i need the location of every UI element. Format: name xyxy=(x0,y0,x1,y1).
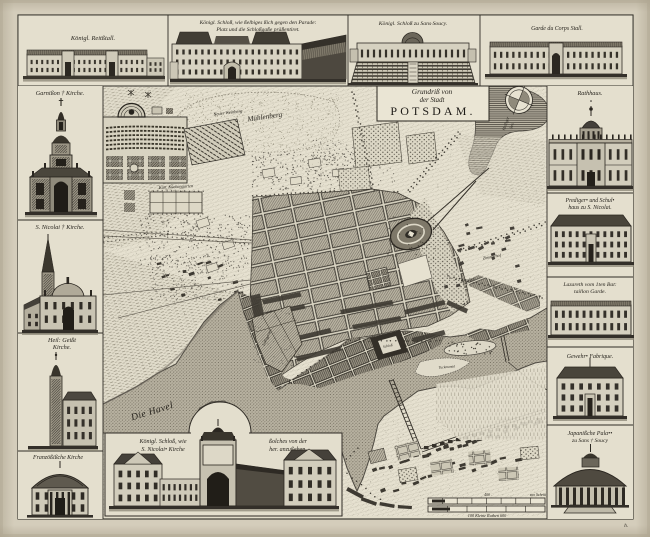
svg-text:Garde du Corps Stall.: Garde du Corps Stall. xyxy=(531,26,583,32)
svg-text:Königl. Reitßtall.: Königl. Reitßtall. xyxy=(70,35,116,42)
svg-text:Kirche.: Kirche. xyxy=(52,344,71,351)
svg-text:Königl. Schloß zu Sans·Soucy.: Königl. Schloß zu Sans·Soucy. xyxy=(378,20,448,27)
svg-text:Garnißon † Kirche.: Garnißon † Kirche. xyxy=(36,90,84,97)
svg-text:Grundriß von: Grundriß von xyxy=(412,87,453,96)
svg-text:POTSDAM.: POTSDAM. xyxy=(390,104,475,118)
svg-text:der Stadt: der Stadt xyxy=(420,97,446,104)
svg-text:100 Kleine Ruthen 600: 100 Kleine Ruthen 600 xyxy=(468,513,507,518)
svg-text:h.: h. xyxy=(624,524,628,529)
svg-text:haus zu S. Nicolai.: haus zu S. Nicolai. xyxy=(568,205,611,211)
svg-text:S. Nicolai † Kirche.: S. Nicolai † Kirche. xyxy=(36,224,85,231)
svg-text:Japanißche Pala••: Japanißche Pala•• xyxy=(568,430,613,437)
svg-text:zu Sans † Soucy: zu Sans † Soucy xyxy=(571,438,608,444)
svg-text:Königl. Schloß, wie ßelbiges ß: Königl. Schloß, wie ßelbiges ßich gegen … xyxy=(199,19,317,26)
svg-text:S. Nicolai• Kirche: S. Nicolai• Kirche xyxy=(141,447,185,453)
svg-text:zoo Schritt: zoo Schritt xyxy=(529,493,547,497)
svg-text:Rathhaus.: Rathhaus. xyxy=(577,90,603,97)
svg-text:Lazareth vom 1ten Bat:: Lazareth vom 1ten Bat: xyxy=(562,282,616,288)
svg-text:Königl. Schloß, wie: Königl. Schloß, wie xyxy=(139,438,187,445)
svg-text:taillon Garde.: taillon Garde. xyxy=(574,289,606,295)
svg-text:ßolches von der: ßolches von der xyxy=(268,438,308,445)
svg-text:Heil: Geißt: Heil: Geißt xyxy=(47,337,76,344)
svg-text:Prediger• und Schul•: Prediger• und Schul• xyxy=(565,198,615,204)
svg-text:400: 400 xyxy=(484,493,490,497)
svg-text:Franzößißche Kirche: Franzößißche Kirche xyxy=(32,454,83,461)
